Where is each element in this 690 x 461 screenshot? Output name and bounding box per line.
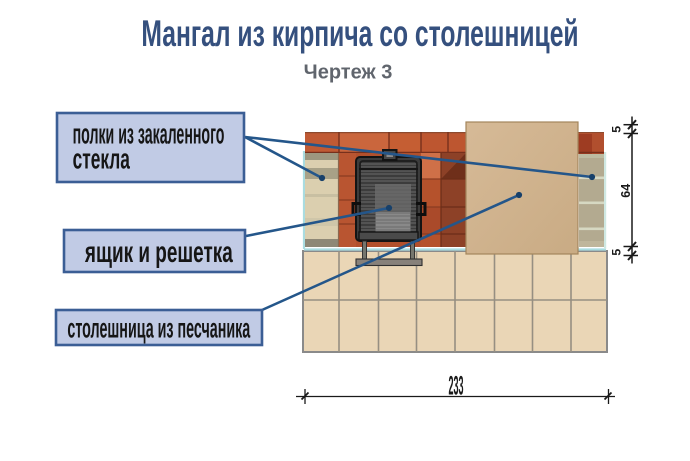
svg-text:стекла: стекла (73, 143, 131, 176)
svg-text:233: 233 (449, 372, 464, 402)
svg-text:Чертеж 3: Чертеж 3 (304, 62, 393, 84)
svg-text:столешница из песчаника: столешница из песчаника (67, 312, 250, 343)
svg-text:64: 64 (619, 184, 633, 198)
svg-text:ящик и решетка: ящик и решетка (84, 236, 233, 269)
svg-text:5: 5 (610, 126, 624, 133)
svg-text:5: 5 (610, 249, 624, 256)
svg-text:Мангал из кирпича со столешниц: Мангал из кирпича со столешницей (141, 13, 578, 54)
